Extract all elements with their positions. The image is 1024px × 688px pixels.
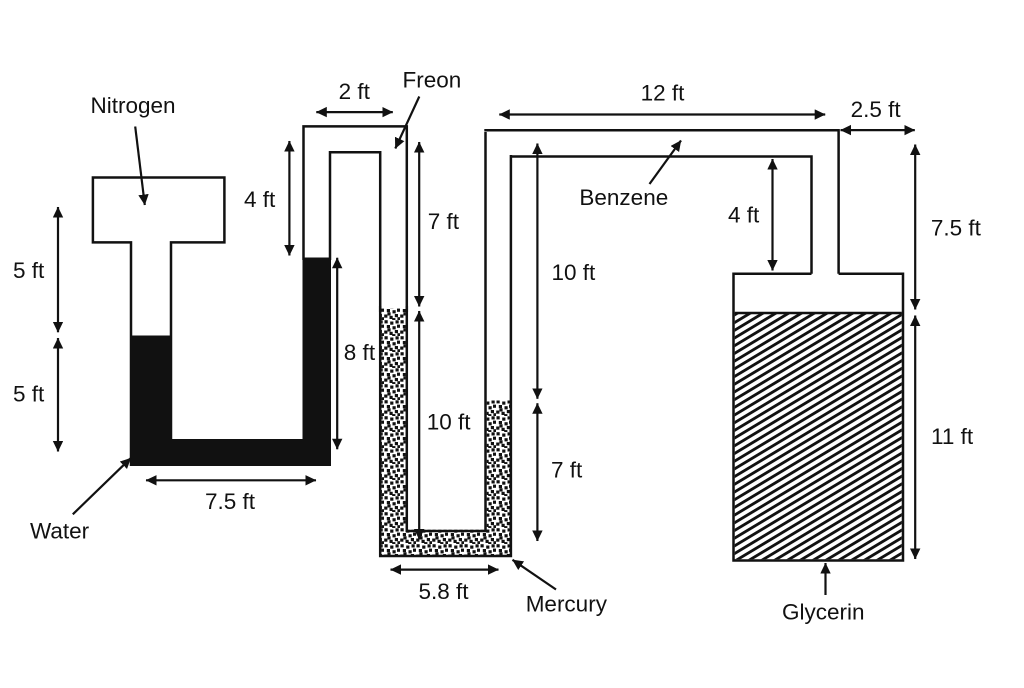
svg-text:7 ft: 7 ft [428, 209, 460, 234]
svg-text:Mercury: Mercury [526, 592, 608, 617]
svg-text:12 ft: 12 ft [641, 80, 686, 105]
svg-text:5 ft: 5 ft [13, 382, 45, 407]
svg-text:Benzene: Benzene [579, 185, 668, 210]
svg-text:2 ft: 2 ft [339, 79, 371, 104]
svg-text:10 ft: 10 ft [427, 410, 472, 435]
svg-text:2.5 ft: 2.5 ft [851, 97, 902, 122]
svg-text:Nitrogen: Nitrogen [91, 93, 176, 118]
svg-text:8 ft: 8 ft [344, 340, 376, 365]
svg-text:Water: Water [30, 519, 90, 544]
svg-text:7.5 ft: 7.5 ft [931, 216, 982, 241]
svg-text:7.5 ft: 7.5 ft [205, 489, 256, 514]
svg-text:10 ft: 10 ft [552, 260, 597, 285]
svg-text:7 ft: 7 ft [551, 457, 583, 482]
svg-text:4 ft: 4 ft [244, 187, 276, 212]
svg-text:5 ft: 5 ft [13, 258, 45, 283]
svg-text:Freon: Freon [403, 68, 462, 93]
svg-text:4 ft: 4 ft [728, 202, 760, 227]
svg-text:11 ft: 11 ft [931, 424, 974, 449]
svg-text:Glycerin: Glycerin [782, 600, 865, 625]
svg-text:5.8 ft: 5.8 ft [419, 579, 470, 604]
